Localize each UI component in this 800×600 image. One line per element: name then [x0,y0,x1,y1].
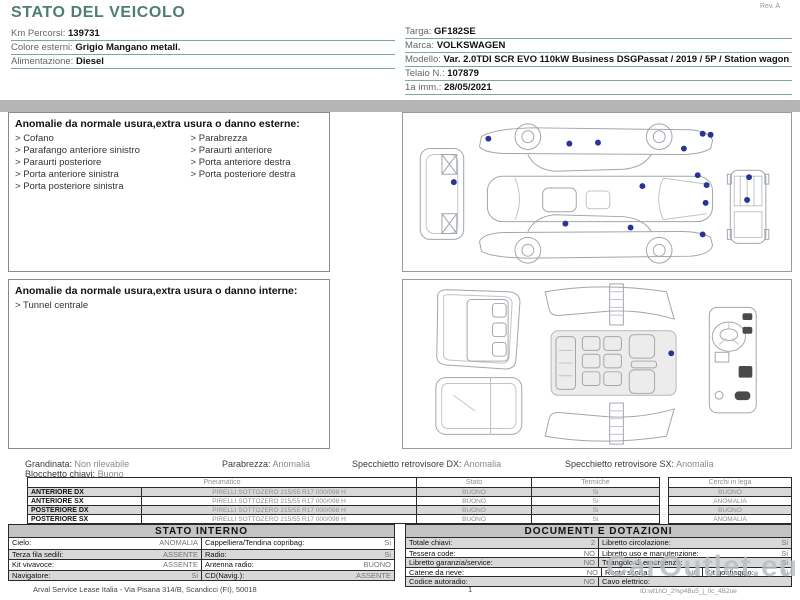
damage-marker [595,140,601,146]
damage-marker [639,183,645,189]
tyre-table: Pneumatico Stato Termiche ANTERIORE DX P… [27,477,660,524]
column-header-pneumatico: Pneumatico [28,478,416,487]
table-row: Navigatore:Si CD(Navig.):ASSENTE [9,570,394,581]
list-item: Porta posteriore sinistra [15,181,191,193]
interior-diagram-box [402,279,792,449]
car-plan-view [487,176,712,221]
exterior-anomalies-list-left: Cofano Parafango anteriore sinistro Para… [15,133,191,193]
field-prima-imm: 1a imm.: 28/05/2021 [405,81,792,95]
list-item: Porta posteriore destra [191,169,296,181]
list-item: Paraurti anteriore [191,145,296,157]
list-item: Porta anteriore destra [191,157,296,169]
interior-anomalies-list: Tunnel centrale [15,300,191,312]
damage-marker [668,350,674,356]
column-header-stato: Stato [416,478,531,487]
column-header-termiche: Termiche [531,478,659,487]
damage-marker [704,182,710,188]
table-row: Terza fila sedili:ASSENTE Radio:Si [9,549,394,560]
interior-anomalies-box: Anomalie da normale usura,extra usura o … [8,279,330,449]
watermark: CarOutlet.eu [606,550,798,584]
dashboard-view [709,307,756,412]
damage-marker [485,136,491,142]
summary-specchietto-dx: Specchietto retrovisore DX: Anomalia [352,459,501,469]
damage-marker [746,174,752,180]
cabin-plan-view [545,284,676,444]
stato-interno-table: STATO INTERNO Cielo:ANOMALIA Cappelliera… [8,524,395,581]
column-header-cerchi: Cerchi in lega [669,478,791,487]
damage-marker [628,225,634,231]
list-item: Tunnel centrale [15,300,191,312]
table-row: ANTERIORE SX PIRELLI SOTTOZERO 215/55 R1… [28,496,659,505]
table-row: POSTERIORE DX PIRELLI SOTTOZERO 215/55 R… [28,505,659,514]
damage-marker [681,146,687,152]
revision-label: Rev. A [760,3,780,10]
interior-anomalies-title: Anomalie da normale usura,extra usura o … [15,285,323,297]
damage-marker [744,197,750,203]
field-targa: Targa: GF182SE [405,25,792,39]
section-divider-bar [0,100,800,112]
table-row: ANOMALIA [669,514,791,523]
table-row: BUONO [669,487,791,496]
table-row: BUONO [669,505,791,514]
field-km-percorsi: Km Percorsi: 139731 [11,27,395,41]
table-row: ANTERIORE DX PIRELLI SOTTOZERO 215/55 R1… [28,487,659,496]
tyre-table-header: Pneumatico Stato Termiche [28,478,659,487]
table-row: Kit vivavoce:ASSENTE Antenna radio:BUONO [9,559,394,570]
rims-table-header: Cerchi in lega [669,478,791,487]
list-item: Parabrezza [191,133,296,145]
exterior-anomalies-title: Anomalie da normale usura,extra usura o … [15,118,323,130]
footer-company: Arval Service Lease Italia - Via Pisana … [33,585,257,594]
list-item: Parafango anteriore sinistro [15,145,191,157]
summary-specchietto-sx: Specchietto retrovisore SX: Anomalia [565,459,714,469]
stato-interno-title: STATO INTERNO [9,525,394,538]
list-item: Cofano [15,133,191,145]
documenti-title: DOCUMENTI E DOTAZIONI [406,525,791,538]
table-row: Cielo:ANOMALIA Cappelliera/Tendina copri… [9,538,394,549]
vehicle-info-left: Km Percorsi: 139731 Colore esterni: Grig… [11,27,395,69]
damage-marker [566,141,572,147]
boot-window-view [436,378,522,435]
car-rear-view [727,170,768,243]
exterior-anomalies-list-right: Parabrezza Paraurti anteriore Porta ante… [191,133,296,193]
field-alimentazione: Alimentazione: Diesel [11,55,395,69]
car-side-view-top [479,124,712,171]
damage-marker [700,232,706,238]
table-row: Totale chiavi:2 Libretto circolazione:Si [406,538,791,548]
damage-marker [703,200,709,206]
car-front-view [420,149,463,240]
damage-marker [700,131,706,137]
field-marca: Marca: VOLKSWAGEN [405,39,792,53]
exterior-anomalies-box: Anomalie da normale usura,extra usura o … [8,112,330,272]
table-row: ANOMALIA [669,496,791,505]
rear-seats-view [437,290,520,369]
footer-page-number: 1 [468,585,472,594]
field-modello: Modello: Var. 2.0TDI SCR EVO 110kW Busin… [405,53,792,67]
field-colore-esterni: Colore esterni: Grigio Mangano metall. [11,41,395,55]
rims-table: Cerchi in lega BUONO ANOMALIA BUONO ANOM… [668,477,792,524]
field-telaio: Telaio N.: 107879 [405,67,792,81]
summary-grandinata: Grandinata: Non rilevabile [25,459,129,469]
car-exterior-diagram [403,113,791,271]
damage-marker [708,132,714,138]
damage-marker [695,172,701,178]
vehicle-info-right: Targa: GF182SE Marca: VOLKSWAGEN Modello… [405,25,792,95]
table-row: POSTERIORE SX PIRELLI SOTTOZERO 215/55 R… [28,514,659,523]
summary-parabrezza: Parabrezza: Anomalia [222,459,310,469]
page-title: STATO DEL VEICOLO [11,4,185,22]
damage-marker [562,221,568,227]
document-id: ID:wf1hO_2%p4Bu5_j_0c_4B2ue [640,588,737,595]
exterior-diagram-box [402,112,792,272]
list-item: Paraurti posteriore [15,157,191,169]
list-item: Porta anteriore sinistra [15,169,191,181]
damage-marker [451,179,457,185]
car-interior-diagram [403,280,791,448]
